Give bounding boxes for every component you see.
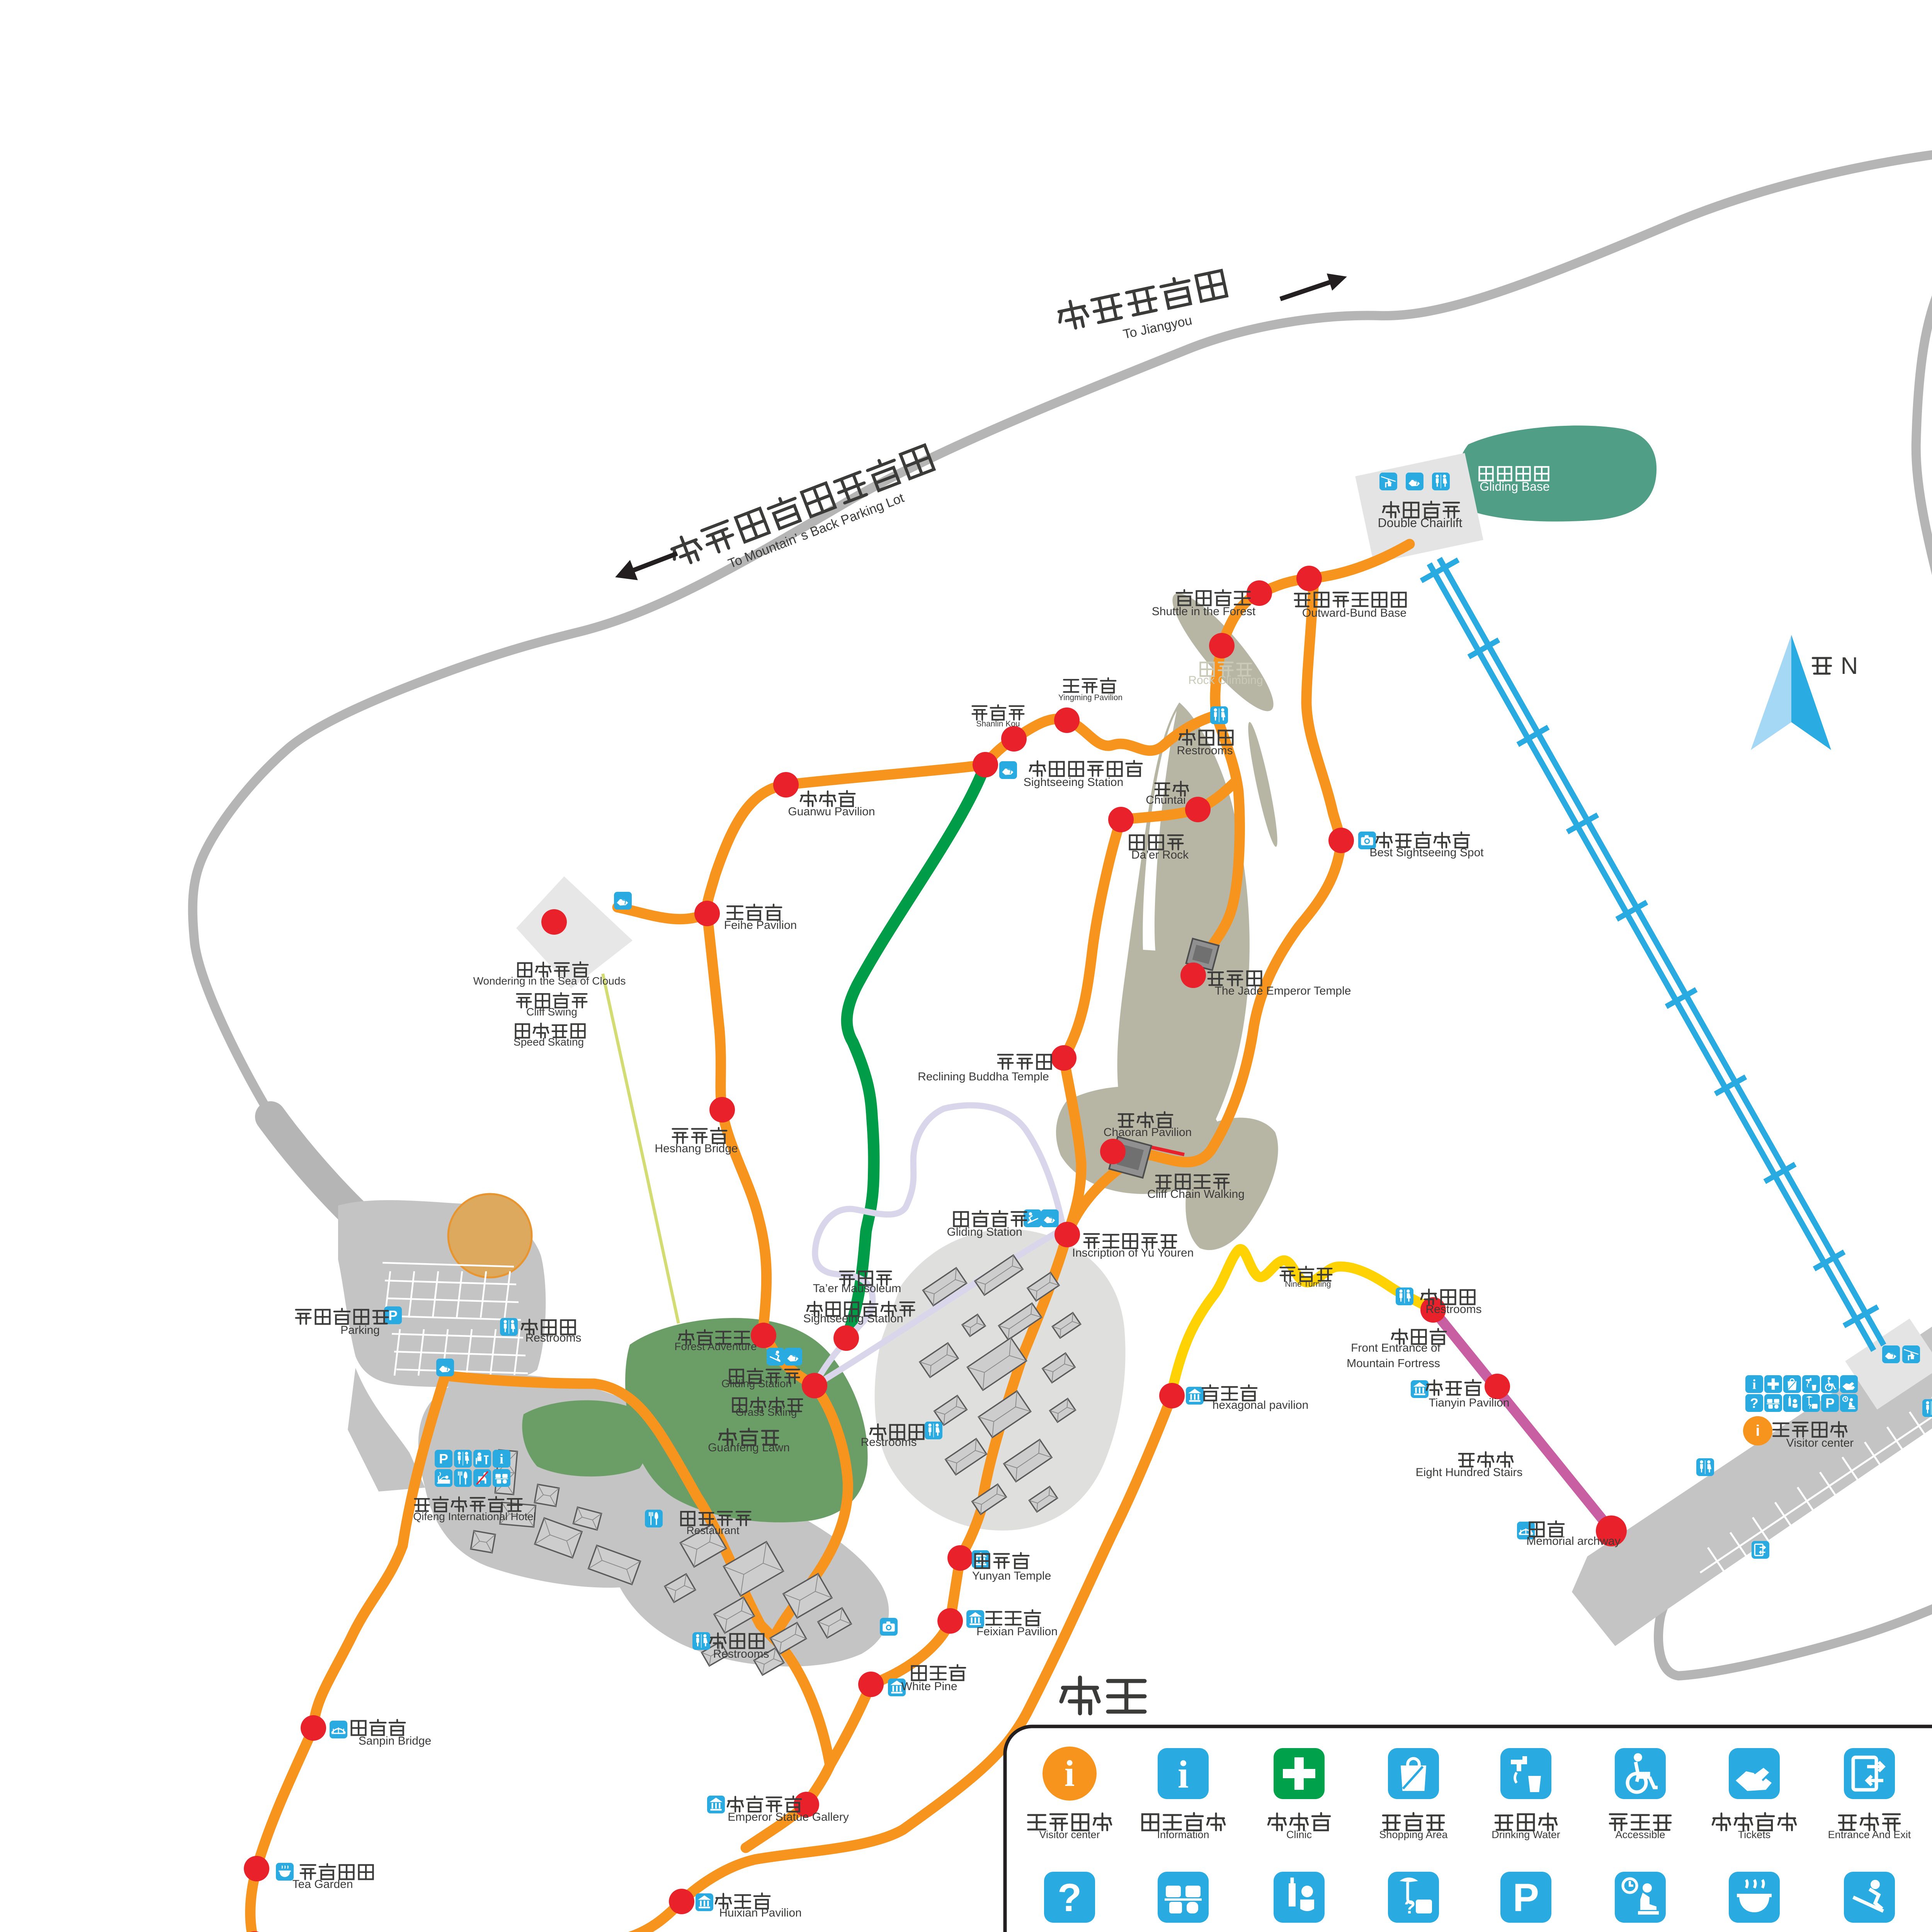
svg-text:i: i: [1755, 1422, 1760, 1439]
svg-text:Shanlin Kou: Shanlin Kou: [976, 719, 1020, 728]
svg-text:Eight Hundred Stairs: Eight Hundred Stairs: [1416, 1466, 1523, 1479]
svg-text:N: N: [1841, 653, 1858, 679]
svg-text:Sightseeing Station: Sightseeing Station: [1024, 776, 1124, 789]
svg-text:Entrance And Exit: Entrance And Exit: [1828, 1829, 1911, 1840]
svg-text:Reclining Buddha Temple: Reclining Buddha Temple: [918, 1070, 1049, 1083]
svg-text:Sightseeing Station: Sightseeing Station: [803, 1312, 903, 1325]
svg-text:Restaurant: Restaurant: [687, 1524, 740, 1536]
svg-text:Sanpin Bridge: Sanpin Bridge: [359, 1735, 431, 1747]
svg-text:Heshang Bridge: Heshang Bridge: [655, 1142, 738, 1155]
svg-text:Guanfeng Lawn: Guanfeng Lawn: [708, 1441, 790, 1454]
svg-text:Information: Information: [1157, 1829, 1209, 1840]
svg-text:Restrooms: Restrooms: [713, 1648, 769, 1660]
svg-text:Drinking Water: Drinking Water: [1492, 1829, 1560, 1840]
svg-text:Rock Climbing: Rock Climbing: [1188, 674, 1263, 687]
svg-text:Visitor center: Visitor center: [1786, 1437, 1854, 1449]
svg-text:Huixian Pavilion: Huixian Pavilion: [719, 1906, 801, 1919]
svg-text:Clinic: Clinic: [1286, 1829, 1312, 1840]
svg-text:i: i: [1065, 1753, 1075, 1794]
svg-text:Chaoran Pavilion: Chaoran Pavilion: [1104, 1126, 1192, 1139]
svg-text:Restrooms: Restrooms: [1425, 1303, 1481, 1316]
svg-text:Best Sightseeing Spot: Best Sightseeing Spot: [1369, 846, 1484, 859]
svg-text:Restrooms: Restrooms: [525, 1332, 581, 1344]
svg-text:Tickets: Tickets: [1738, 1829, 1771, 1840]
svg-text:Grass Skiing: Grass Skiing: [736, 1406, 797, 1418]
svg-text:Wondering in the Sea of Clouds: Wondering in the Sea of Clouds: [473, 975, 626, 987]
svg-text:Gliding Station: Gliding Station: [721, 1378, 792, 1389]
svg-text:Parking: Parking: [340, 1324, 380, 1337]
svg-text:Outward-Bund Base: Outward-Bund Base: [1302, 607, 1406, 619]
svg-text:Ta’er Mausoleum: Ta’er Mausoleum: [813, 1282, 901, 1295]
svg-text:Cliff Swing: Cliff Swing: [526, 1006, 577, 1018]
svg-text:Nine Turning: Nine Turning: [1285, 1280, 1331, 1289]
svg-text:Restrooms: Restrooms: [861, 1436, 917, 1449]
svg-text:Shuttle in the Forest: Shuttle in the Forest: [1152, 605, 1256, 618]
svg-text:Gliding Station: Gliding Station: [947, 1226, 1022, 1238]
svg-text:Inscription of Yu Youren: Inscription of Yu Youren: [1072, 1247, 1194, 1259]
svg-text:hexagonal pavilion: hexagonal pavilion: [1213, 1399, 1309, 1412]
svg-text:Gliding Base: Gliding Base: [1480, 480, 1549, 493]
svg-text:Da’er Rock: Da’er Rock: [1131, 849, 1189, 861]
svg-text:Chuntai: Chuntai: [1146, 794, 1185, 806]
svg-text:Restrooms: Restrooms: [1177, 744, 1233, 757]
svg-text:Guanwu Pavilion: Guanwu Pavilion: [788, 805, 875, 818]
svg-text:Shopping Area: Shopping Area: [1379, 1829, 1448, 1840]
svg-text:White Pine: White Pine: [901, 1680, 957, 1693]
svg-text:Qifeng International Hotel: Qifeng International Hotel: [413, 1510, 536, 1522]
svg-text:Emperor Statue Gallery: Emperor Statue Gallery: [728, 1811, 849, 1823]
svg-text:Double Chairlift: Double Chairlift: [1378, 516, 1463, 530]
svg-text:Feihe Pavilion: Feihe Pavilion: [724, 919, 797, 932]
svg-text:Yunyan Temple: Yunyan Temple: [972, 1570, 1051, 1582]
svg-text:The Jade Emperor Temple: The Jade Emperor Temple: [1215, 985, 1351, 997]
svg-text:Cliff Chain Walking: Cliff Chain Walking: [1147, 1188, 1245, 1201]
svg-text:Forest Adventure: Forest Adventure: [674, 1340, 757, 1352]
svg-text:Feixian Pavilion: Feixian Pavilion: [976, 1625, 1058, 1638]
svg-text:Front Entrance of: Front Entrance of: [1351, 1342, 1440, 1354]
svg-text:Accessible: Accessible: [1615, 1829, 1665, 1840]
svg-text:Speed Skating: Speed Skating: [514, 1036, 584, 1048]
svg-text:Memorial archway: Memorial archway: [1526, 1535, 1620, 1548]
svg-text:Tea Garden: Tea Garden: [293, 1878, 353, 1891]
svg-text:Visitor center: Visitor center: [1039, 1829, 1100, 1840]
svg-text:Mountain Fortress: Mountain Fortress: [1347, 1357, 1440, 1370]
svg-text:Tianyin Pavilion: Tianyin Pavilion: [1429, 1396, 1510, 1409]
svg-text:Yingming Pavilion: Yingming Pavilion: [1058, 693, 1122, 702]
